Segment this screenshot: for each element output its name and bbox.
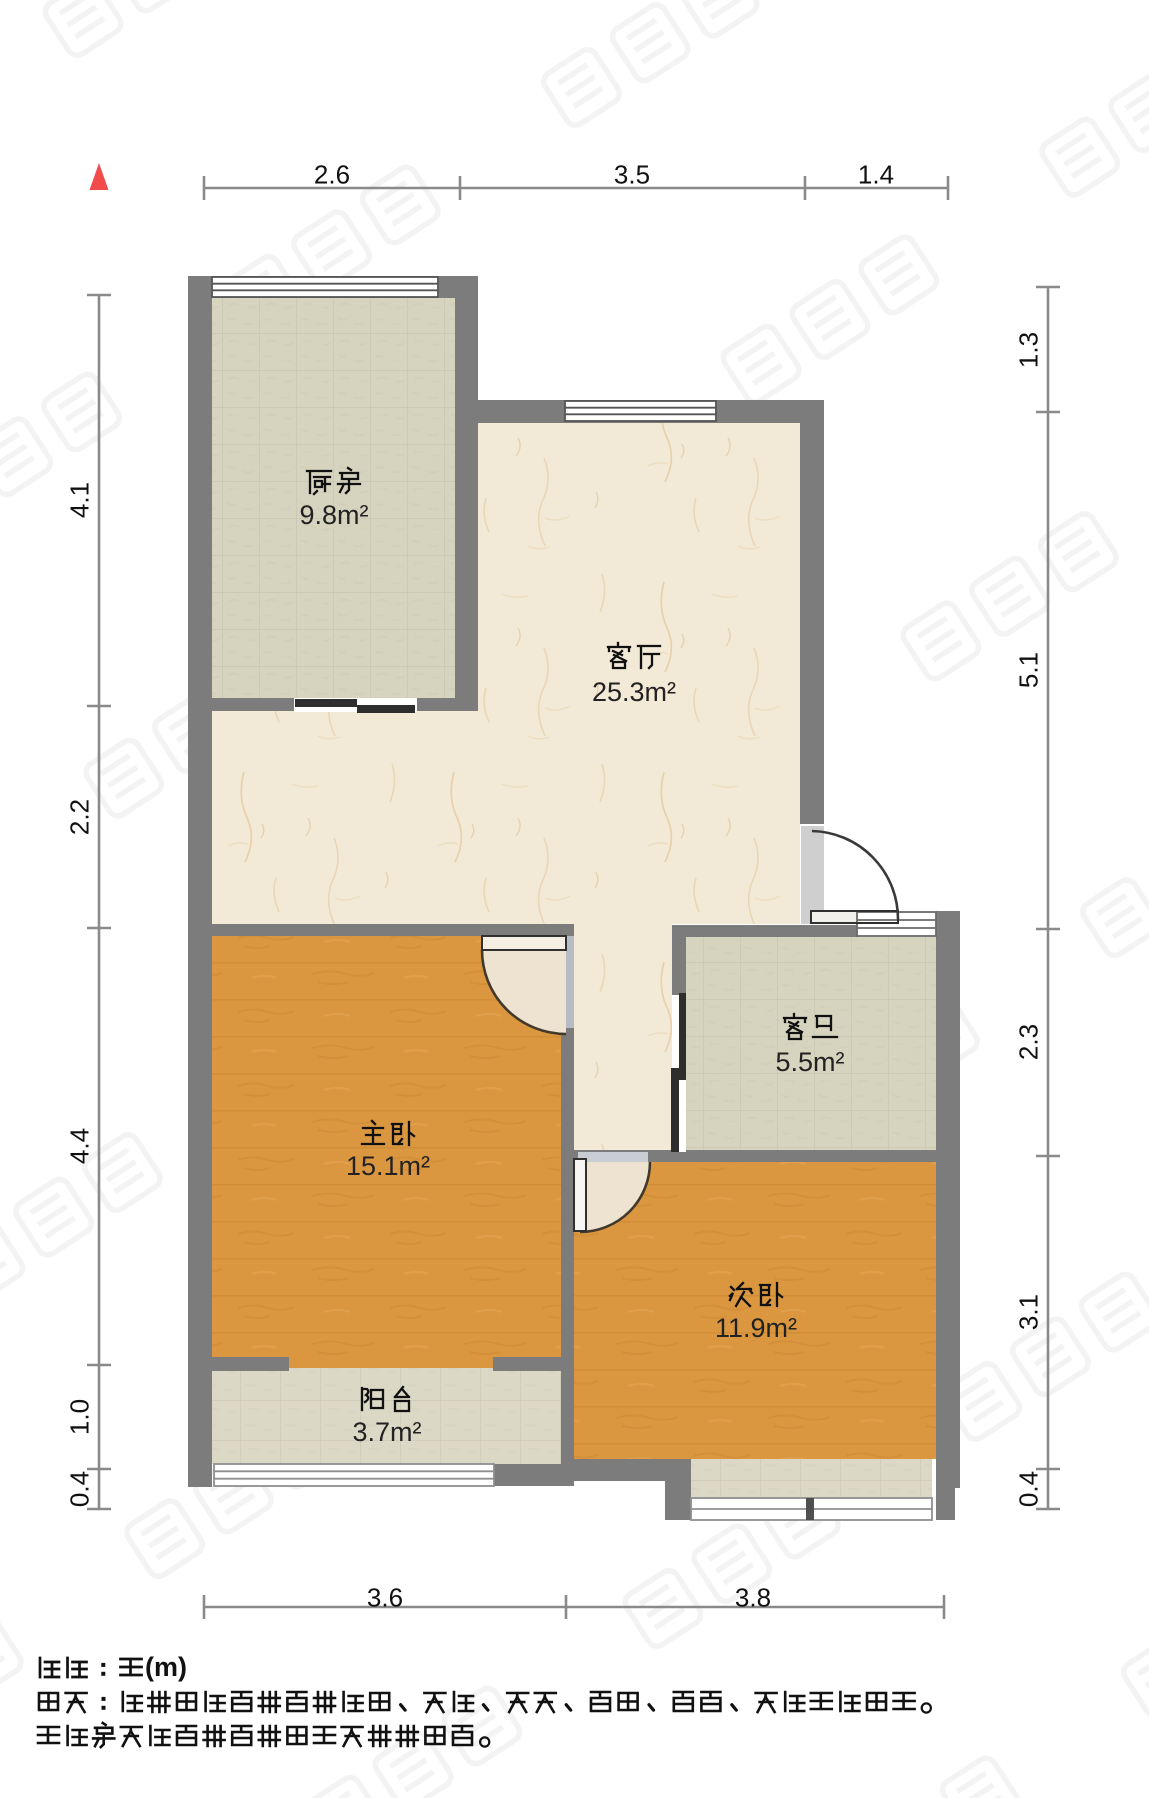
svg-text:1.3: 1.3 — [1013, 332, 1043, 368]
svg-text:5.1: 5.1 — [1013, 652, 1043, 688]
svg-text:2.6: 2.6 — [314, 159, 350, 189]
svg-text:25.3m²: 25.3m² — [592, 677, 676, 707]
svg-text:5.5m²: 5.5m² — [775, 1047, 844, 1077]
svg-text:1.4: 1.4 — [858, 159, 894, 189]
svg-text:(m): (m) — [145, 1652, 187, 1682]
svg-text:3.8: 3.8 — [735, 1582, 771, 1612]
svg-text:11.9m²: 11.9m² — [715, 1313, 797, 1343]
svg-text:4.1: 4.1 — [64, 482, 94, 518]
svg-text:3.5: 3.5 — [614, 159, 650, 189]
svg-text:9.8m²: 9.8m² — [299, 500, 368, 530]
svg-text:3.1: 3.1 — [1013, 1294, 1043, 1330]
svg-text:2.3: 2.3 — [1013, 1024, 1043, 1060]
svg-text:0.4: 0.4 — [64, 1471, 94, 1507]
svg-text:3.7m²: 3.7m² — [352, 1417, 421, 1447]
svg-text:3.6: 3.6 — [367, 1582, 403, 1612]
svg-text:1.0: 1.0 — [64, 1399, 94, 1435]
svg-text:2.2: 2.2 — [64, 799, 94, 835]
svg-text:0.4: 0.4 — [1013, 1471, 1043, 1507]
svg-text:15.1m²: 15.1m² — [346, 1151, 430, 1181]
svg-text:4.4: 4.4 — [64, 1128, 94, 1164]
